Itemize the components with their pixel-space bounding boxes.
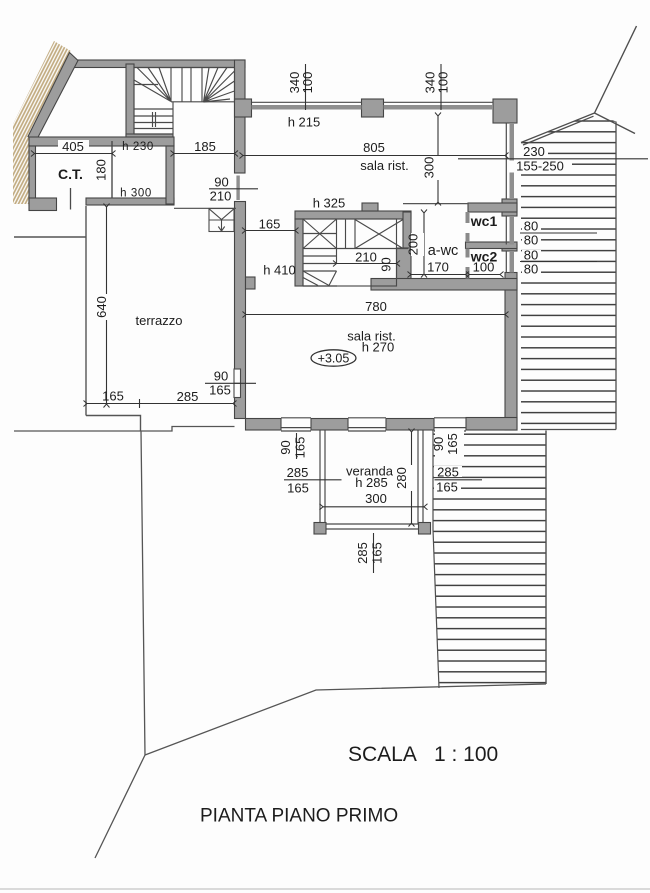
svg-text:165: 165: [436, 480, 458, 495]
svg-text:h 270: h 270: [362, 340, 395, 355]
svg-text:h 230: h 230: [122, 141, 154, 153]
svg-text:165: 165: [209, 383, 231, 398]
svg-text:h 285: h 285: [355, 475, 388, 490]
svg-text:300: 300: [422, 157, 437, 179]
svg-text:165: 165: [445, 433, 460, 455]
svg-text:90: 90: [214, 175, 228, 190]
svg-text:80: 80: [524, 248, 538, 263]
svg-text:+3.05: +3.05: [318, 352, 350, 366]
svg-text:210: 210: [210, 189, 232, 204]
svg-text:285: 285: [287, 465, 309, 480]
svg-text:80: 80: [524, 262, 538, 277]
svg-text:155-250: 155-250: [516, 159, 564, 174]
svg-text:170: 170: [427, 260, 449, 275]
svg-text:1 : 100: 1 : 100: [434, 743, 498, 766]
svg-text:80: 80: [524, 233, 538, 248]
svg-text:h 325: h 325: [313, 196, 346, 211]
svg-text:80: 80: [524, 219, 538, 234]
svg-text:405: 405: [62, 139, 84, 154]
svg-text:PIANTA PIANO PRIMO: PIANTA PIANO PRIMO: [200, 806, 398, 827]
svg-text:185: 185: [194, 139, 216, 154]
svg-text:h 215: h 215: [288, 115, 321, 130]
svg-text:sala rist.: sala rist.: [360, 158, 408, 173]
svg-text:210: 210: [355, 250, 377, 265]
svg-text:640: 640: [94, 296, 109, 318]
svg-text:165: 165: [102, 389, 124, 404]
svg-text:165: 165: [287, 481, 309, 496]
svg-text:100: 100: [473, 260, 495, 275]
svg-text:SCALA: SCALA: [348, 743, 417, 766]
svg-text:300: 300: [365, 491, 387, 506]
svg-text:90: 90: [431, 437, 446, 451]
svg-text:180: 180: [94, 159, 109, 181]
svg-text:90: 90: [379, 257, 394, 271]
svg-text:165: 165: [259, 217, 281, 232]
svg-text:90: 90: [214, 369, 228, 384]
svg-text:780: 780: [365, 299, 387, 314]
svg-text:100: 100: [300, 72, 315, 94]
svg-text:100: 100: [436, 72, 451, 94]
svg-text:C.T.: C.T.: [58, 166, 83, 182]
svg-text:a-wc: a-wc: [428, 243, 459, 259]
svg-text:280: 280: [394, 467, 409, 489]
svg-text:165: 165: [370, 542, 385, 564]
svg-text:h 410: h 410: [263, 263, 296, 278]
svg-text:wc1: wc1: [470, 213, 498, 229]
svg-text:805: 805: [363, 140, 385, 155]
svg-text:200: 200: [406, 234, 421, 256]
svg-text:h 300: h 300: [120, 188, 152, 200]
svg-text:terrazzo: terrazzo: [136, 313, 183, 328]
svg-text:165: 165: [293, 437, 308, 459]
svg-text:90: 90: [278, 440, 293, 454]
svg-text:285: 285: [355, 542, 370, 564]
svg-text:285: 285: [437, 465, 459, 480]
svg-text:230: 230: [523, 144, 545, 159]
svg-text:285: 285: [177, 389, 199, 404]
